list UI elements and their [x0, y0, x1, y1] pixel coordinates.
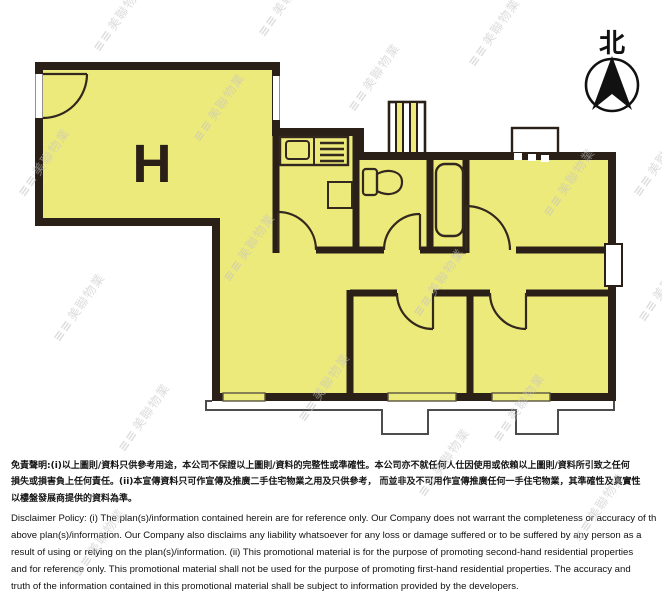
apartment-outline: [39, 66, 612, 397]
duct-shaft: [389, 102, 425, 156]
disclaimer-en-line: result of using or relying on the plan(s…: [11, 544, 656, 561]
disclaimer-zh-line: 免責聲明:(i)以上圖則/資料只供參考用途，本公司不保證以上圖則/資料的完整性或…: [11, 458, 656, 474]
ac-box: [512, 128, 558, 156]
floor-plan: H 北: [0, 0, 662, 455]
north-compass: 北: [586, 29, 638, 111]
bottom-ledge-outline: [206, 401, 614, 434]
disclaimer-english: Disclaimer Policy: (i) The plan(s)/infor…: [11, 510, 656, 595]
entrance-door-opening: [36, 74, 43, 118]
floor-plan-promo-image: { "compass": { "label": "北" }, "floor_pl…: [0, 0, 662, 594]
north-label: 北: [599, 29, 625, 59]
right-window-box: [605, 244, 622, 286]
disclaimer: 免責聲明:(i)以上圖則/資料只供參考用途，本公司不保證以上圖則/資料的完整性或…: [11, 458, 656, 595]
disclaimer-en-line: and for reference only. This promotional…: [11, 561, 656, 578]
disclaimer-zh-line: 以樓盤發展商提供的資料為準。: [11, 491, 656, 507]
disclaimer-en-line: above plan(s)/information. Our Company a…: [11, 527, 656, 544]
unit-label: H: [133, 134, 172, 194]
disclaimer-zh-line: 損失或損害負上任何責任。(ii)本宣傳資料只可作宣傳及推廣二手住宅物業之用及只供…: [11, 474, 656, 490]
disclaimer-chinese: 免責聲明:(i)以上圖則/資料只供參考用途，本公司不保證以上圖則/資料的完整性或…: [11, 458, 656, 507]
disclaimer-en-line: Disclaimer Policy: (i) The plan(s)/infor…: [11, 510, 656, 527]
disclaimer-en-line: truth of the information contained in th…: [11, 578, 656, 595]
hall-opening: [273, 76, 280, 120]
